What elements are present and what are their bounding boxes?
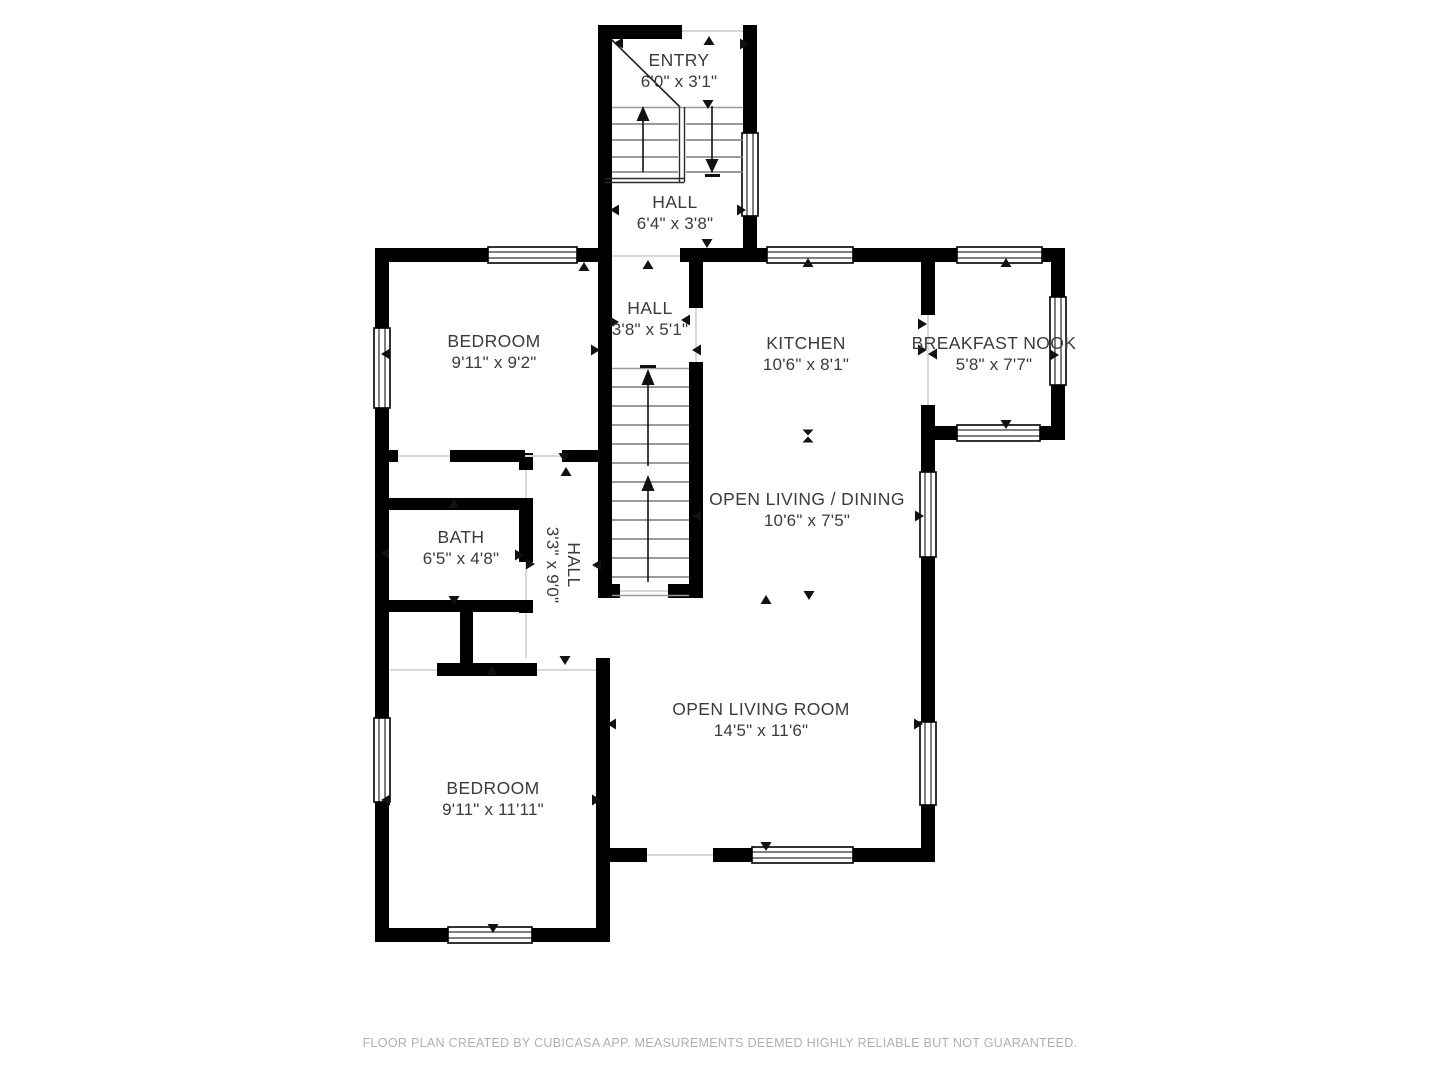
room-name: BREAKFAST NOOK [912,332,1077,354]
room-label-bath: BATH 6'5" x 4'8" [423,526,500,570]
window-bedroom-top-north [488,247,577,263]
window-living-room-east [920,722,936,805]
room-name: BEDROOM [447,330,540,352]
room-name: HALL [637,191,714,213]
floor-plan-canvas [0,0,1440,1080]
window-bedroom-bottom-west [374,718,390,802]
room-dims: 3'8" x 5'1" [612,319,689,341]
room-label-hall-upper: HALL 6'4" x 3'8" [637,191,714,235]
room-dims: 6'5" x 4'8" [423,548,500,570]
room-name: KITCHEN [763,332,849,354]
room-name: BATH [423,526,500,548]
room-label-breakfast-nook: BREAKFAST NOOK 5'8" x 7'7" [912,332,1077,376]
room-name: BEDROOM [442,777,544,799]
room-name: HALL [563,527,585,604]
room-label-hall-lower: HALL 3'3" x 9'0" [541,527,585,604]
room-label-open-living-room: OPEN LIVING ROOM 14'5" x 11'6" [672,698,850,742]
room-dims: 5'8" x 7'7" [912,354,1077,376]
measure-arrows-left-icon [380,38,937,806]
room-dims: 10'6" x 7'5" [709,510,905,532]
window-bedroom-top-west [374,328,390,408]
window-living-dining-east [920,472,936,557]
room-name: HALL [612,297,689,319]
main-stairs-icon [612,365,689,596]
measure-hourglass-icon [803,430,814,443]
room-name: OPEN LIVING / DINING [709,488,905,510]
upper-stairs-icon [605,106,743,183]
room-label-hall-mid: HALL 3'8" x 5'1" [612,297,689,341]
window-hall-entry-east [742,133,758,216]
room-name: ENTRY [641,49,718,71]
room-label-kitchen: KITCHEN 10'6" x 8'1" [763,332,849,376]
window-kitchen-north [767,247,853,263]
footer-disclaimer: FLOOR PLAN CREATED BY CUBICASA APP. MEAS… [0,1036,1440,1050]
room-dims: 6'0" x 3'1" [641,71,718,93]
room-dims: 6'4" x 3'8" [637,213,714,235]
room-dims: 14'5" x 11'6" [672,720,850,742]
room-dims: 9'11" x 11'11" [442,799,544,821]
window-nook-south [957,425,1040,441]
room-label-entry: ENTRY 6'0" x 3'1" [641,49,718,93]
room-label-open-living-dining: OPEN LIVING / DINING 10'6" x 7'5" [709,488,905,532]
window-living-room-south [752,847,853,863]
window-nook-north [957,247,1042,263]
room-dims: 9'11" x 9'2" [447,352,540,374]
room-name: OPEN LIVING ROOM [672,698,850,720]
window-bedroom-bottom-south [448,927,532,943]
room-dims: 3'3" x 9'0" [541,527,563,604]
room-label-bedroom-bottom: BEDROOM 9'11" x 11'11" [442,777,544,821]
floor-plan: ENTRY 6'0" x 3'1" HALL 6'4" x 3'8" HALL … [0,0,1440,1080]
room-dims: 10'6" x 8'1" [763,354,849,376]
room-label-bedroom-top: BEDROOM 9'11" x 9'2" [447,330,540,374]
